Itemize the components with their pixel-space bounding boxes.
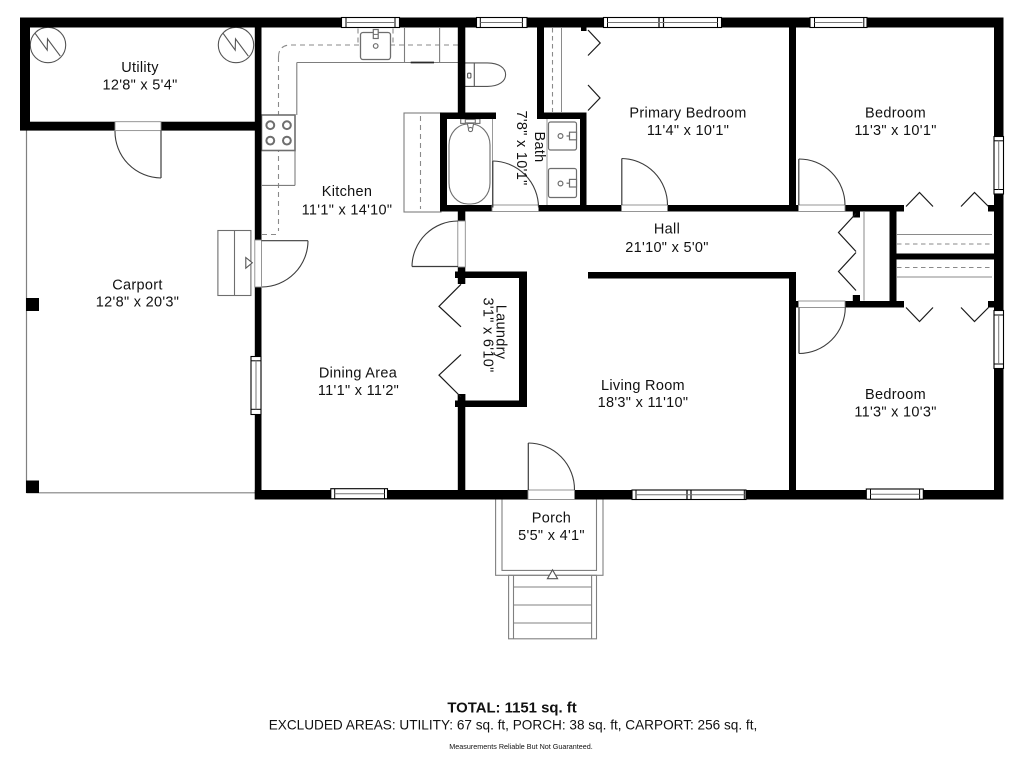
svg-text:Hall: Hall	[654, 222, 680, 238]
svg-text:11'3" x 10'1": 11'3" x 10'1"	[854, 123, 936, 139]
svg-text:Measurements Reliable But Not: Measurements Reliable But Not Guaranteed…	[449, 742, 592, 751]
svg-text:Kitchen: Kitchen	[322, 184, 372, 200]
svg-text:21'10" x 5'0": 21'10" x 5'0"	[625, 240, 708, 256]
svg-text:7'8" x 10'1": 7'8" x 10'1"	[513, 110, 529, 185]
svg-text:Living Room: Living Room	[601, 378, 685, 394]
svg-text:5'5" x 4'1": 5'5" x 4'1"	[518, 528, 585, 544]
svg-text:Dining Area: Dining Area	[319, 366, 398, 382]
svg-text:18'3" x 11'10": 18'3" x 11'10"	[598, 395, 689, 411]
svg-text:Porch: Porch	[532, 511, 571, 527]
svg-text:Carport: Carport	[112, 278, 162, 294]
svg-text:11'1" x 14'10": 11'1" x 14'10"	[302, 203, 393, 219]
svg-text:Utility: Utility	[121, 60, 159, 76]
svg-text:Bedroom: Bedroom	[865, 387, 926, 403]
svg-text:12'8" x 5'4": 12'8" x 5'4"	[102, 78, 177, 94]
svg-text:11'3" x 10'3": 11'3" x 10'3"	[854, 405, 936, 421]
svg-text:Bedroom: Bedroom	[865, 106, 926, 122]
svg-text:Bath: Bath	[531, 131, 547, 162]
svg-text:Primary Bedroom: Primary Bedroom	[629, 106, 746, 122]
svg-text:3'1" x 6'10": 3'1" x 6'10"	[480, 297, 496, 372]
svg-text:EXCLUDED AREAS: UTILITY: 67 sq: EXCLUDED AREAS: UTILITY: 67 sq. ft, PORC…	[269, 718, 758, 733]
svg-text:12'8" x 20'3": 12'8" x 20'3"	[96, 295, 179, 311]
svg-text:11'4" x 10'1": 11'4" x 10'1"	[647, 123, 729, 139]
svg-text:11'1" x 11'2": 11'1" x 11'2"	[318, 383, 399, 399]
svg-text:TOTAL: 1151 sq. ft: TOTAL: 1151 sq. ft	[447, 701, 576, 717]
